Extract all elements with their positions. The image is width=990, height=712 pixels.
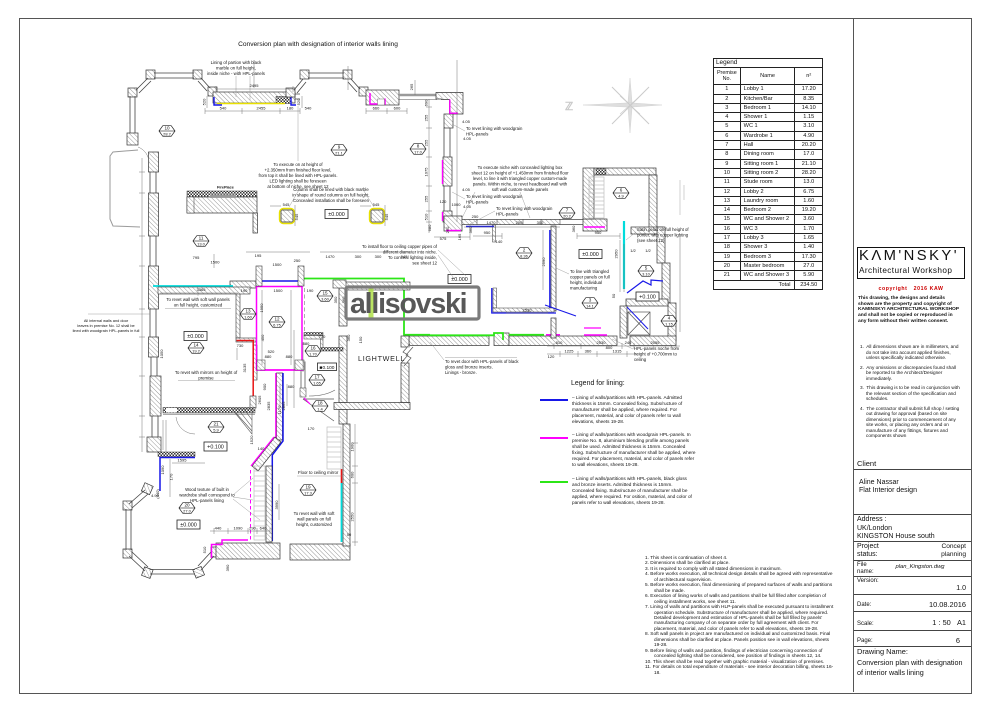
svg-text:19: 19	[305, 485, 311, 490]
svg-text:4.05: 4.05	[463, 204, 472, 209]
svg-text:140: 140	[258, 446, 265, 451]
svg-text:545: 545	[294, 213, 299, 220]
svg-text:170: 170	[169, 473, 174, 480]
svg-text:6.75: 6.75	[273, 323, 282, 328]
svg-text:Concealed installation shall b: Concealed installation shall be foreseen	[293, 198, 370, 203]
svg-text:545: 545	[283, 202, 290, 207]
svg-text:3.10: 3.10	[642, 272, 651, 277]
svg-text:19.2: 19.2	[192, 349, 201, 354]
svg-text:wall panels on full: wall panels on full	[297, 517, 331, 522]
svg-text:170: 170	[308, 426, 315, 431]
svg-text:premise: premise	[198, 376, 214, 381]
svg-text:2950: 2950	[614, 249, 619, 259]
svg-text:allisovski: allisovski	[350, 288, 466, 320]
svg-text:21: 21	[213, 422, 219, 427]
svg-text:sheet 12 on height of +1.450mm: sheet 12 on height of +1.450mm from fini…	[471, 171, 569, 176]
svg-text:+2.350mm from finished floor l: +2.350mm from finished floor level,	[265, 168, 332, 173]
svg-text:255: 255	[424, 114, 429, 121]
svg-text:3135: 3135	[242, 363, 247, 373]
svg-text:880: 880	[303, 341, 310, 346]
svg-text:gloss and bronze inserts.: gloss and bronze inserts.	[445, 365, 493, 370]
svg-text:390: 390	[225, 564, 230, 571]
svg-text:soft wall custom-made panels: soft wall custom-made panels	[492, 187, 549, 192]
svg-text:940: 940	[401, 254, 408, 259]
svg-text:To line with triangled: To line with triangled	[570, 269, 610, 274]
svg-text:17.0: 17.0	[414, 150, 423, 155]
svg-text:880: 880	[286, 354, 293, 359]
svg-text:50: 50	[611, 293, 616, 298]
svg-text:panels. Within niche, to revet: panels. Within niche, to revet headboard…	[473, 182, 568, 187]
svg-text:880: 880	[265, 354, 272, 359]
svg-text:±0.000: ±0.000	[180, 523, 196, 529]
svg-text:1/2: 1/2	[630, 248, 636, 253]
svg-text:1.15: 1.15	[665, 322, 674, 327]
svg-text:1500: 1500	[274, 288, 284, 293]
svg-text:HPL-panels: HPL-panels	[496, 212, 518, 217]
svg-text:12: 12	[274, 317, 280, 322]
svg-text:190: 190	[241, 288, 248, 293]
svg-text:±0.000: ±0.000	[328, 212, 344, 218]
svg-text:950: 950	[484, 230, 491, 235]
svg-text:450: 450	[260, 334, 265, 341]
svg-text:ceiling: ceiling	[634, 357, 647, 362]
svg-text:250: 250	[294, 258, 301, 263]
svg-text:To revet wall with soft wall p: To revet wall with soft wall panels	[166, 297, 229, 302]
svg-text:FirePlace: FirePlace	[217, 186, 234, 190]
svg-text:1000: 1000	[452, 202, 462, 207]
svg-text:portier, with copper lighting: portier, with copper lighting	[637, 233, 689, 238]
svg-text:16: 16	[310, 346, 316, 351]
svg-text:2530: 2530	[523, 308, 533, 313]
svg-text:(440): (440)	[155, 489, 160, 499]
svg-text:11: 11	[199, 236, 204, 241]
svg-text:180: 180	[287, 106, 294, 111]
svg-text:1470: 1470	[326, 254, 336, 259]
svg-text:6: 6	[620, 188, 623, 193]
svg-text:810: 810	[556, 340, 563, 345]
svg-text:(see sheet 12): (see sheet 12)	[637, 238, 665, 243]
svg-text:HPL-panels lining: HPL-panels lining	[190, 498, 224, 503]
svg-text:200: 200	[516, 220, 523, 225]
svg-text:+0.100: +0.100	[639, 295, 656, 301]
svg-text:360: 360	[468, 226, 473, 233]
svg-text:1595: 1595	[178, 458, 188, 463]
svg-text:To conceal lighting inside,: To conceal lighting inside,	[388, 255, 437, 260]
svg-text:17.3: 17.3	[304, 491, 313, 496]
svg-text:255: 255	[424, 139, 429, 146]
svg-text:1315: 1315	[613, 349, 623, 354]
svg-text:5.9: 5.9	[213, 428, 219, 433]
svg-text:15: 15	[322, 291, 328, 296]
svg-text:4: 4	[668, 316, 671, 321]
svg-text:inside niche - with HPL-panels: inside niche - with HPL-panels	[207, 71, 265, 76]
svg-text:1900: 1900	[350, 442, 355, 452]
svg-text:level, to line it with triangl: level, to line it with triangled copper …	[473, 176, 568, 181]
svg-text:300: 300	[375, 254, 382, 259]
svg-text:9: 9	[338, 145, 341, 150]
svg-text:360: 360	[585, 349, 592, 354]
svg-text:1470: 1470	[487, 220, 497, 225]
svg-text:660: 660	[373, 106, 380, 111]
svg-text:510: 510	[202, 546, 207, 553]
svg-text:To revet lining with woodgrain: To revet lining with woodgrain	[466, 126, 523, 131]
svg-text:2455: 2455	[257, 106, 267, 111]
svg-text:2835: 2835	[266, 401, 271, 411]
svg-text:3990: 3990	[274, 500, 279, 510]
svg-text:545: 545	[373, 202, 380, 207]
svg-text:545: 545	[384, 213, 389, 220]
svg-text:8.36: 8.36	[520, 254, 529, 259]
svg-text:manufacturing: manufacturing	[570, 286, 598, 291]
svg-text:360: 360	[571, 225, 576, 232]
svg-text:13: 13	[245, 309, 251, 314]
svg-text:8: 8	[417, 144, 420, 149]
svg-text:1.70: 1.70	[309, 352, 318, 357]
svg-text:950: 950	[595, 230, 602, 235]
svg-text:600: 600	[394, 106, 401, 111]
svg-text:255: 255	[424, 195, 429, 202]
svg-text:360: 360	[346, 334, 351, 341]
svg-text:20.2: 20.2	[563, 214, 572, 219]
svg-text:50: 50	[347, 532, 352, 537]
svg-text:1050: 1050	[159, 349, 164, 359]
svg-text:To revet with mirrors on heigh: To revet with mirrors on height of	[175, 370, 238, 375]
svg-text:1500: 1500	[273, 262, 283, 267]
svg-text:520: 520	[296, 98, 301, 105]
svg-text:10: 10	[164, 126, 170, 131]
svg-text:190: 190	[307, 288, 314, 293]
svg-text:690: 690	[424, 99, 429, 106]
svg-text:1/2: 1/2	[645, 248, 651, 253]
svg-text:4.05: 4.05	[462, 187, 471, 192]
svg-text:marble on full height,: marble on full height,	[216, 66, 256, 71]
svg-text:To revet wall with soft: To revet wall with soft	[294, 511, 336, 516]
svg-text:in shape of round columns on f: in shape of round columns on full height…	[292, 193, 369, 198]
svg-text:2055: 2055	[651, 340, 661, 345]
svg-text:To execute on at height of: To execute on at height of	[273, 162, 323, 167]
svg-text:150: 150	[358, 336, 363, 343]
svg-text:640: 640	[260, 526, 267, 531]
svg-text:3: 3	[589, 298, 592, 303]
svg-text:1.4: 1.4	[317, 407, 323, 412]
svg-text:18: 18	[317, 401, 323, 406]
svg-text:4.05: 4.05	[463, 136, 472, 141]
svg-text:lined with woodgrain HPL-panel: lined with woodgrain HPL-panels in full	[73, 328, 140, 333]
svg-text:20: 20	[184, 503, 190, 508]
svg-text:3365: 3365	[197, 287, 207, 292]
svg-text:795: 795	[193, 255, 200, 260]
svg-text:2550: 2550	[350, 512, 355, 522]
svg-text:■0.100: ■0.100	[320, 365, 335, 371]
svg-text:copper panels on full: copper panels on full	[570, 275, 610, 280]
svg-text:1225: 1225	[565, 349, 575, 354]
svg-text:14.1: 14.1	[586, 304, 595, 309]
svg-text:on full height, customized: on full height, customized	[174, 303, 223, 308]
svg-text:wardrobe shall correspond to: wardrobe shall correspond to	[179, 493, 235, 498]
svg-text:height, customized: height, customized	[296, 522, 332, 527]
svg-text:7: 7	[566, 208, 569, 213]
svg-text:2605: 2605	[257, 395, 262, 405]
svg-text:140: 140	[496, 239, 503, 244]
svg-text:1950: 1950	[259, 303, 264, 313]
svg-text:Linings - bronze.: Linings - bronze.	[445, 370, 477, 375]
svg-text:To revet lining with woodgrain: To revet lining with woodgrain	[466, 194, 523, 199]
svg-text:Lining of partion with black: Lining of partion with black	[211, 60, 262, 65]
svg-text:300: 300	[537, 220, 544, 225]
svg-text:540: 540	[305, 106, 312, 111]
svg-text:2: 2	[523, 248, 526, 253]
svg-text:1.60: 1.60	[244, 315, 253, 320]
svg-text:4.9: 4.9	[618, 194, 624, 199]
svg-text:21.1: 21.1	[335, 151, 344, 156]
svg-text:1520: 1520	[249, 435, 254, 445]
svg-text:height, individual: height, individual	[570, 280, 602, 285]
svg-text:195: 195	[255, 253, 262, 258]
svg-text:730: 730	[319, 334, 326, 339]
svg-text:from top it shall be lined wit: from top it shall be lined with HPL-pane…	[258, 173, 337, 178]
svg-text:350: 350	[333, 296, 338, 303]
svg-text:2495: 2495	[250, 83, 260, 88]
svg-text:600: 600	[350, 471, 355, 478]
svg-text:27.0: 27.0	[183, 509, 192, 514]
svg-text:To execute niche with conceale: To execute niche with concealed lighting…	[478, 165, 564, 170]
svg-text:LIGHTWELL: LIGHTWELL	[358, 354, 405, 363]
svg-text:To install floor to ceiling co: To install floor to ceiling copper pipes…	[362, 244, 438, 249]
svg-text:575: 575	[440, 236, 447, 241]
svg-text:120: 120	[440, 199, 447, 204]
svg-text:240: 240	[625, 340, 632, 345]
svg-text:+0.100: +0.100	[207, 445, 224, 451]
svg-text:height of +0.700mm to: height of +0.700mm to	[634, 352, 677, 357]
svg-text:250: 250	[472, 214, 479, 219]
svg-text:HPL-panels noche from: HPL-panels noche from	[634, 346, 680, 351]
svg-text:1.65: 1.65	[313, 381, 322, 386]
svg-text:1500: 1500	[211, 260, 221, 265]
svg-text:5: 5	[645, 266, 648, 271]
svg-text:Floor to ceiling mirror: Floor to ceiling mirror	[298, 470, 339, 475]
svg-text:Wood texture of built in: Wood texture of built in	[185, 487, 229, 492]
svg-text:LED lighting shall be foreseen: LED lighting shall be foreseen	[269, 179, 327, 184]
svg-text:900: 900	[262, 383, 267, 390]
svg-text:28.2: 28.2	[163, 132, 172, 137]
svg-text:510: 510	[424, 213, 429, 220]
svg-text:165: 165	[457, 233, 462, 240]
svg-text:Satin gelas on full height of: Satin gelas on full height of	[637, 227, 689, 232]
svg-text:680: 680	[427, 224, 432, 231]
svg-text:1090: 1090	[160, 465, 165, 475]
svg-text:520: 520	[202, 98, 207, 105]
svg-text:730: 730	[237, 343, 244, 348]
svg-text:±0.000: ±0.000	[187, 334, 203, 340]
svg-text:265: 265	[409, 83, 414, 90]
svg-text:3.60: 3.60	[321, 297, 330, 302]
svg-text:1090: 1090	[234, 526, 244, 531]
svg-text:440: 440	[215, 526, 222, 531]
svg-text:290: 290	[249, 526, 256, 531]
svg-text:Column shall be lined with bla: Column shall be lined with black marble	[293, 187, 369, 192]
svg-text:300: 300	[355, 254, 362, 259]
svg-text:±0.000: ±0.000	[582, 252, 598, 258]
svg-text:880: 880	[288, 384, 295, 389]
svg-text:1170: 1170	[277, 405, 282, 414]
svg-text:To revet door with HPL-panels: To revet door with HPL-panels of black	[445, 359, 519, 364]
svg-text:4.05: 4.05	[462, 119, 471, 124]
svg-text:120: 120	[548, 354, 555, 359]
svg-text:see sheet 12: see sheet 12	[412, 261, 437, 266]
svg-text:2590: 2590	[541, 257, 546, 267]
svg-text:13.0: 13.0	[197, 242, 206, 247]
svg-text:540: 540	[220, 106, 227, 111]
svg-text:ℤ: ℤ	[565, 101, 573, 113]
svg-text:1075: 1075	[424, 167, 429, 177]
svg-text:14: 14	[193, 343, 199, 348]
svg-text:To revet lining with woodgrain: To revet lining with woodgrain	[496, 206, 553, 211]
svg-text:260: 260	[445, 226, 450, 233]
svg-text:17: 17	[314, 375, 320, 380]
